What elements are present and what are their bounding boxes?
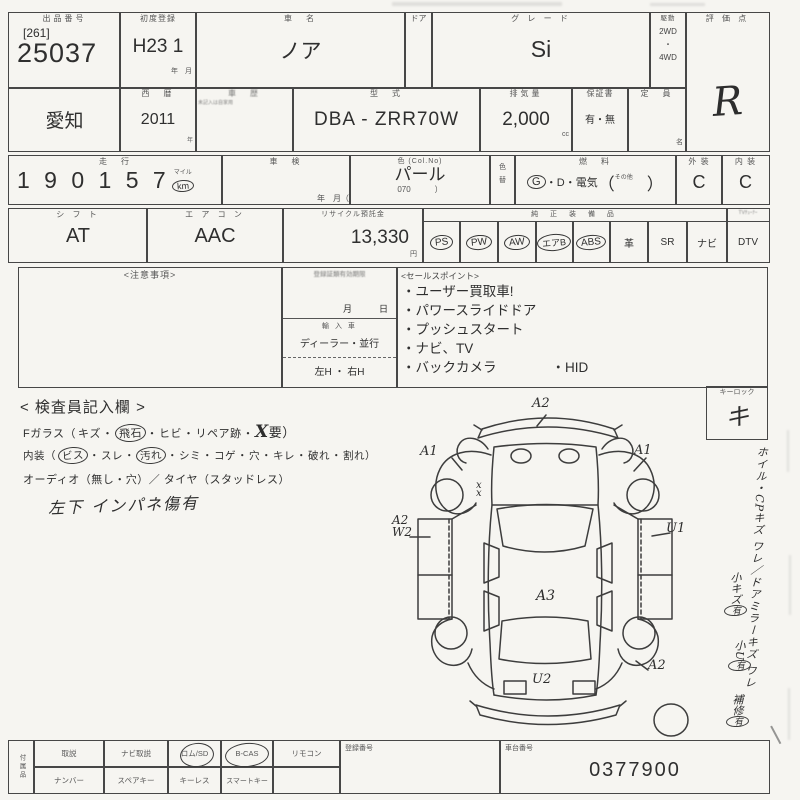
history-cell: 車 歴 未記入は自家用	[195, 87, 294, 152]
exterior-grade-label: 外 装	[676, 156, 722, 167]
fuel-cell: 燃 料 G ・D・電気 （ その他 ）	[514, 155, 677, 205]
glass-item: キズ	[78, 428, 101, 440]
interior-grade-value: C	[722, 172, 769, 193]
inspector-interior-line: 内装（ビス・スレ・汚れ・シミ・コゲ・穴・キレ・破れ・割れ）	[23, 447, 376, 464]
history-label: 車 歴	[196, 88, 293, 99]
warranty-cell: 保証書 有・無	[571, 87, 629, 152]
interior-item: ビス	[58, 446, 89, 465]
import-label: 輸 入 車	[283, 321, 396, 331]
mileage-label: 走 行	[9, 156, 222, 167]
interior-item: シミ	[179, 450, 201, 462]
equipment-cell-sunroof: SR	[647, 221, 688, 263]
stray-pen-stroke	[771, 726, 782, 744]
color-change-label-2: 替	[490, 175, 515, 188]
year-cell: 西 暦 2011 年	[119, 87, 197, 152]
grade-value: Si	[432, 24, 650, 76]
equipment-cell-airbag: エアB	[535, 221, 574, 263]
accessory-remote-cell: リモコン	[273, 740, 340, 767]
equipment-cell-abs: ABS	[572, 221, 611, 263]
damage-mark-left-side: A2 W2	[392, 514, 412, 538]
shaken-units: 年 月（	[222, 193, 350, 204]
equipment-navi: ナビ	[697, 235, 717, 250]
grade-cell: グ レ ー ド Si	[431, 12, 651, 89]
mileage-value: 1 9 0 1 5 7	[9, 168, 170, 193]
shift-cell: シ フ ト AT	[8, 208, 148, 263]
first-registration-cell: 初度登録 H23 1 年 月	[119, 12, 197, 89]
accessory-number-plate-cell: ナンバー	[34, 767, 104, 794]
fuel-gasoline-circled: G	[527, 175, 546, 190]
keylock-box: キーロック キ	[706, 386, 768, 440]
validity-date-units: 月 日	[283, 302, 396, 319]
history-note: 未記入は自家用	[196, 99, 293, 106]
sidebar-small-scratch-note: 小キズ有	[724, 572, 747, 616]
year-unit: 年	[120, 135, 196, 144]
interior-item: コゲ	[214, 450, 236, 462]
equipment-leather: 革	[624, 235, 634, 250]
fuel-paren-close: ）	[647, 170, 664, 195]
equipment-sunroof: SR	[661, 237, 675, 248]
accessory-spare-key-cell: スペアキー	[104, 767, 168, 794]
equipment-cell-leather: 革	[609, 221, 649, 263]
chassis-number-cell: 車台番号 0377900	[500, 740, 770, 794]
accessory-smart-key-cell: スマートキー	[221, 767, 273, 794]
equipment-cell-navi: ナビ	[686, 221, 728, 263]
first-registration-value: H23 1	[120, 36, 196, 58]
mileage-cell: 走 行 1 9 0 1 5 7 マイル km	[8, 155, 223, 205]
ari-circle: 有	[724, 604, 748, 617]
damage-mark-front: A2	[532, 396, 550, 411]
ari-circle: 有	[728, 659, 752, 672]
aircon-label: エ ア コ ン	[147, 209, 283, 220]
shaken-label: 車 検	[222, 156, 350, 167]
door-cell: ドア	[404, 12, 433, 89]
model-code-value: DBA - ZRR70W	[293, 99, 480, 141]
equipment-abs: ABS	[576, 233, 607, 251]
validity-label: 登録証類有効期限	[283, 268, 396, 278]
damage-mark-front-right: A1	[634, 443, 652, 458]
fuel-options: ・D・電気	[546, 174, 598, 190]
glass-repair-x-mark: X	[255, 422, 269, 442]
inspector-handwritten-note: 左下 インパネ傷有	[48, 489, 200, 518]
damage-mark-rear-right: A2	[648, 658, 666, 673]
fuel-paren-open: （	[598, 170, 615, 195]
capacity-unit: 名	[628, 137, 686, 147]
sales-point: ・ユーザー買取車!	[402, 282, 767, 301]
interior-item: 割れ	[343, 450, 365, 462]
sales-points-label: <セールスポイント>	[398, 268, 767, 282]
score-cell: 評 価 点 R	[685, 12, 770, 152]
capacity-label: 定 員	[628, 88, 686, 99]
equipment-cell-pw: PW	[459, 221, 499, 263]
scan-smudge	[787, 430, 789, 472]
year-value: 2011	[120, 111, 196, 129]
inspector-front-glass-line: Fガラス（キズ・飛石・ヒビ・リペア跡・X要）	[23, 422, 296, 442]
scan-smudge	[789, 555, 791, 615]
model-code-cell: 型 式 DBA - ZRR70W	[292, 87, 481, 152]
shaken-cell: 車 検 年 月（	[221, 155, 351, 205]
glass-item: リペア跡	[196, 428, 242, 440]
first-registration-units: 年 月	[120, 66, 196, 76]
equipment-cell-dtv: DTV	[726, 221, 770, 263]
sales-point: ・プッシュスタート	[402, 320, 767, 339]
sales-points-box: <セールスポイント> ・ユーザー買取車! ・パワースライドドア ・プッシュスター…	[397, 267, 768, 388]
glass-item: ヒビ	[159, 428, 182, 440]
car-diagram	[398, 393, 698, 743]
equipment-header-label: 純 正 装 備 品	[423, 209, 727, 219]
damage-mark-roof: A3	[536, 588, 555, 604]
import-options: ディーラー・並行	[283, 335, 396, 358]
damage-mark-rear: U2	[532, 672, 551, 687]
interior-item: 破れ	[308, 450, 330, 462]
interior-grade-label: 内 装	[722, 156, 769, 167]
validity-box: 登録証類有効期限 月 日 輸 入 車 ディーラー・並行 左H ・ 右H	[282, 267, 397, 388]
year-label: 西 暦	[120, 88, 196, 99]
exterior-grade-cell: 外 装 C	[675, 155, 723, 205]
exterior-grade-value: C	[676, 172, 722, 193]
drive-option-2wd: 2WD	[650, 26, 686, 39]
car-name-value: ノア	[196, 24, 405, 76]
sales-point-extra: ・HID	[552, 358, 589, 377]
glass-item: 要）	[269, 425, 296, 440]
recycle-fee-cell: リサイクル預託金 13,330 円	[282, 208, 424, 263]
prefecture-cell: 愛知	[8, 87, 121, 152]
equipment-dtv: DTV	[738, 237, 758, 248]
interior-item: スレ	[101, 450, 123, 462]
caution-label: <注意事項>	[19, 268, 281, 281]
color-number: 070 ）	[350, 184, 490, 195]
damage-mark-xx: x x	[476, 482, 482, 498]
ari-circle: 有	[726, 715, 750, 728]
sidebar-small-dent-note: 小U有	[728, 640, 751, 671]
equipment-cell-ps: PS	[422, 221, 461, 263]
car-name-cell: 車 名 ノア	[195, 12, 406, 89]
equipment-aw: AW	[504, 233, 531, 250]
color-cell: 色 (Col.No) パール 070 ）	[349, 155, 491, 205]
drive-option-dot: ・	[650, 39, 686, 52]
registration-number-cell: 登録番号	[340, 740, 500, 794]
score-label: 評 価 点	[686, 13, 769, 24]
sales-point: ・パワースライドドア	[402, 301, 767, 320]
dtv-header: TVﾁｭｰﾅｰ	[726, 208, 770, 222]
prefecture-value: 愛知	[45, 106, 83, 133]
interior-item: キレ	[273, 450, 295, 462]
sales-point: ・バックカメラ	[402, 358, 497, 377]
equipment-airbag: エアB	[537, 232, 572, 252]
shift-value: AT	[9, 220, 147, 254]
fuel-other-label: その他	[615, 172, 633, 181]
sales-point: ・ナビ、TV	[402, 339, 767, 358]
lot-number-label: 出品番号	[9, 13, 120, 24]
color-change-label-1: 色	[490, 162, 515, 175]
shift-label: シ フ ト	[9, 209, 147, 220]
drive-type-cell: 駆動 2WD ・ 4WD	[649, 12, 687, 89]
auction-sheet: 出品番号 [261] 25037 初度登録 H23 1 年 月 車 名 ノア ド…	[0, 0, 800, 800]
equipment-pw: PW	[465, 233, 492, 250]
handle-options: 左H ・ 右H	[283, 363, 396, 378]
interior-item: 汚れ	[136, 446, 167, 465]
inspector-section-title: < 検査員記入欄 >	[20, 396, 146, 417]
grade-label: グ レ ー ド	[432, 13, 650, 24]
dtv-header-label: TVﾁｭｰﾅｰ	[727, 209, 769, 216]
chassis-number-label: 車台番号	[501, 741, 769, 753]
door-label: ドア	[405, 13, 432, 24]
glass-item: 飛石	[114, 423, 146, 443]
drive-type-label: 駆動	[650, 13, 686, 22]
displacement-value: 2,000	[480, 109, 572, 131]
equipment-header: 純 正 装 備 品	[422, 208, 728, 222]
equipment-ps: PS	[429, 234, 454, 251]
mileage-unit-km: km	[171, 179, 194, 193]
lot-number-cell: 出品番号 [261] 25037	[8, 12, 121, 89]
damage-mark-front-left: A1	[420, 444, 438, 459]
aircon-value: AAC	[147, 220, 283, 254]
front-glass-label: Fガラス（	[23, 428, 76, 440]
equipment-cell-aw: AW	[497, 221, 537, 263]
capacity-cell: 定 員 名	[627, 87, 687, 152]
accessory-navi-manual-cell: ナビ取説	[104, 740, 168, 767]
recycle-fee-unit: 円	[283, 249, 423, 259]
displacement-unit: cc	[480, 131, 572, 138]
accessories-side-label: 付属品	[8, 740, 34, 794]
color-change-cell: 色 替	[489, 155, 516, 205]
warranty-label: 保証書	[572, 88, 628, 99]
accessory-keyless-cell: キーレス	[168, 767, 221, 794]
interior-item: 穴	[249, 450, 260, 462]
drive-option-4wd: 4WD	[650, 52, 686, 65]
interior-grade-cell: 内 装 C	[721, 155, 770, 205]
accessory-manual-cell: 取説	[34, 740, 104, 767]
color-value: パール	[350, 166, 490, 185]
lot-number-value: 25037	[9, 40, 120, 67]
fuel-label: 燃 料	[515, 156, 676, 167]
interior-label: 内装（	[23, 450, 56, 462]
score-value: R	[684, 76, 770, 128]
scan-smudge	[650, 3, 705, 6]
recycle-fee-value: 13,330	[283, 227, 423, 249]
car-name-label: 車 名	[196, 13, 405, 24]
registration-number-label: 登録番号	[341, 741, 499, 753]
warranty-value: 有・無	[572, 99, 628, 139]
mileage-unit-mile: マイル	[172, 167, 194, 176]
recycle-fee-label: リサイクル預託金	[283, 209, 423, 219]
damage-mark-right-side: U1	[666, 521, 685, 536]
caution-box: <注意事項>	[18, 267, 282, 388]
displacement-cell: 排気量 2,000 cc	[479, 87, 573, 152]
keylock-handwritten-value: キ	[706, 395, 768, 433]
sidebar-repair-note: 補修有	[726, 694, 749, 727]
inspector-audio-tire-line: オーディオ（無し・穴）／ タイヤ（スタッドレス）	[23, 471, 290, 487]
chassis-number-value: 0377900	[501, 759, 769, 782]
scan-smudge	[788, 688, 790, 740]
model-code-label: 型 式	[293, 88, 480, 99]
aircon-cell: エ ア コ ン AAC	[146, 208, 284, 263]
accessory-empty-cell	[273, 767, 340, 794]
first-registration-label: 初度登録	[120, 13, 196, 24]
displacement-label: 排気量	[480, 88, 572, 99]
scan-smudge	[392, 2, 562, 6]
